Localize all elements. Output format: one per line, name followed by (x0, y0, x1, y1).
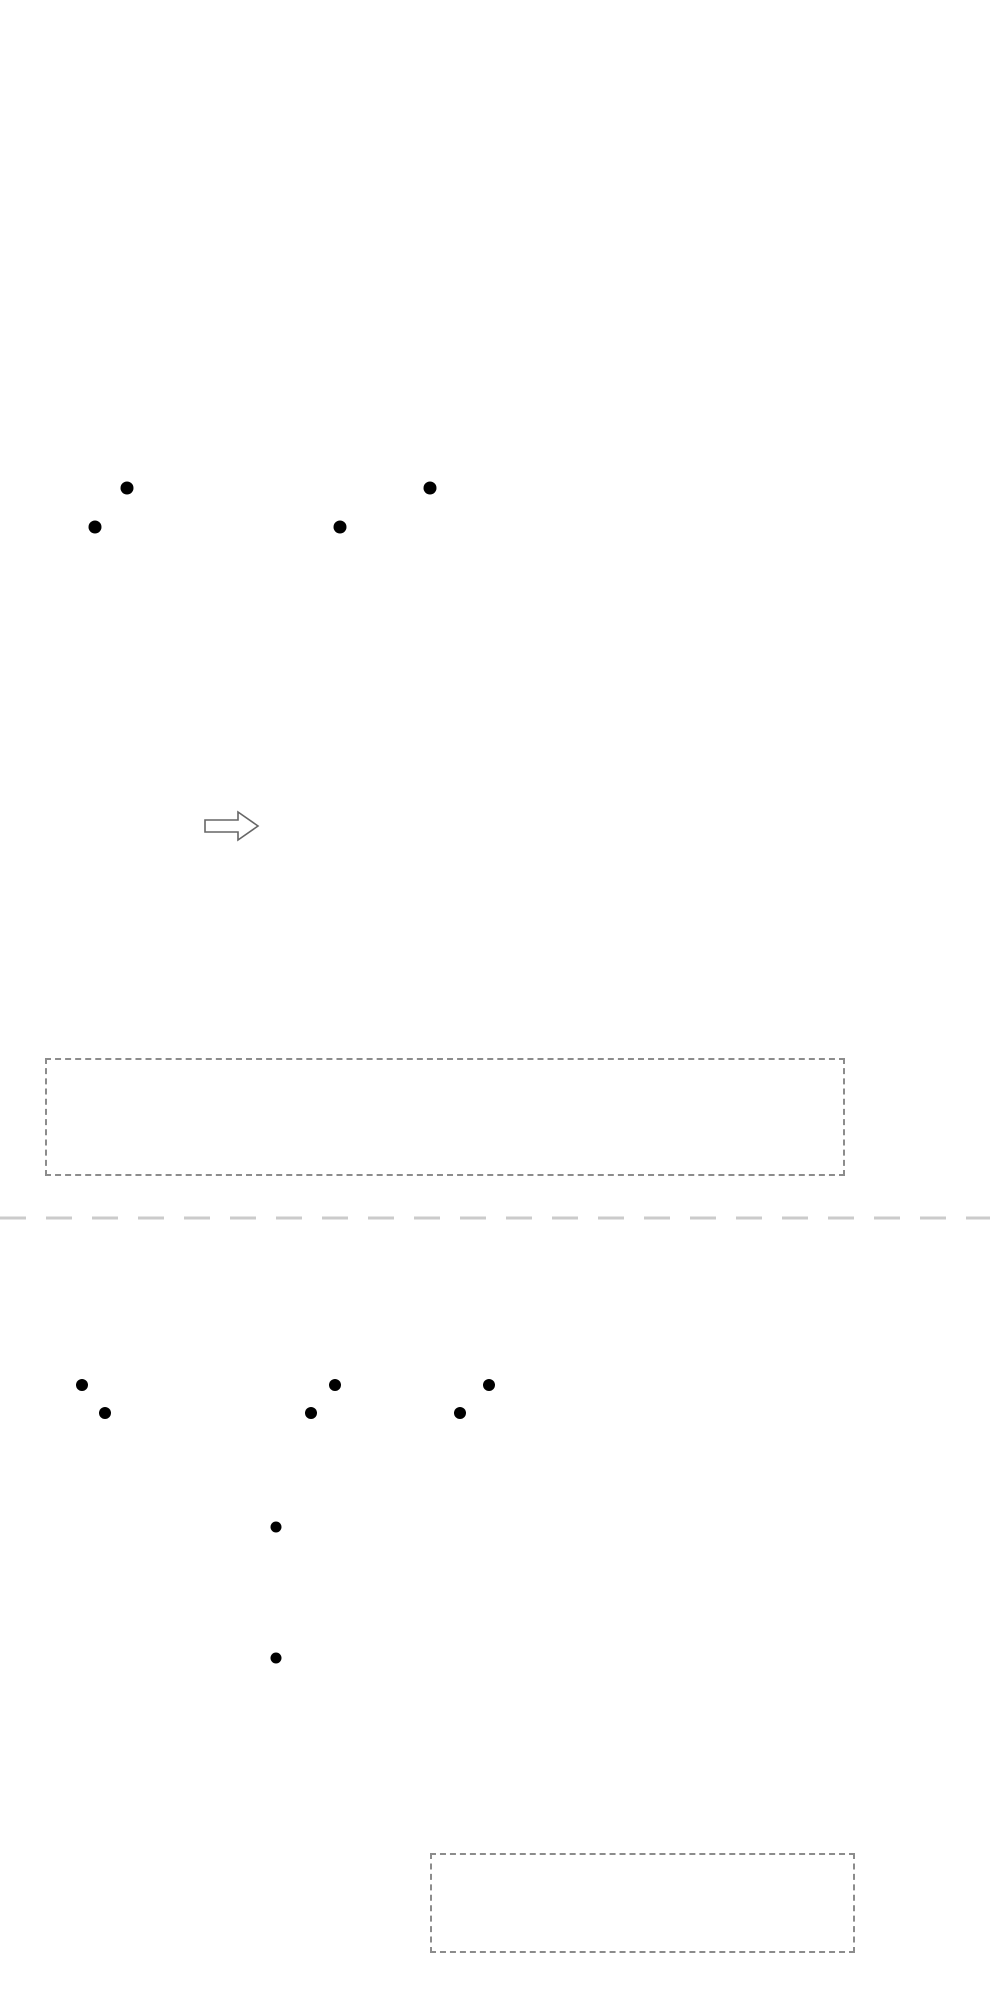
page (0, 0, 990, 2012)
flow-arrow-icon (205, 812, 258, 840)
wiring-svg (0, 0, 990, 2012)
heater-coil-icon (266, 1534, 276, 1661)
